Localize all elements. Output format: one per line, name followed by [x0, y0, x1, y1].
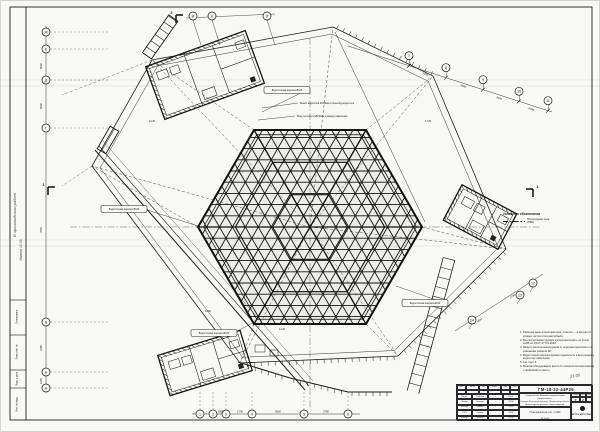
legend-title: Условные обозначения: [503, 212, 595, 216]
org-cell: МЕТРОГИПРОТРАНС: [571, 402, 593, 421]
axis-bubble-label: Г: [45, 126, 47, 130]
signature-cell: ≈: [488, 416, 503, 421]
note-line: 4. Водосточные воронки кровли подключить…: [520, 354, 595, 361]
title-block: ГМ-18-22-44Р25 Строительство Большой кол…: [456, 384, 592, 420]
dim-label: 9000: [39, 103, 43, 109]
stamp-strip-label: Подп. и дата: [16, 371, 19, 386]
pavilion-bottom: [158, 330, 253, 395]
org-name: МЕТРОГИПРОТРАНС: [572, 411, 592, 418]
pavilion-top-left: [146, 31, 265, 120]
legend-dashdot-line: [503, 221, 525, 222]
revision-table: Изм.Кол.уч.Лист№ док.Подп.Дата: [457, 385, 519, 394]
pill-label: Водосточная воронка Ø100: [272, 89, 303, 92]
drawing-number: ГМ-18-22-44Р25: [519, 385, 593, 393]
axis-bubble-label: 6: [347, 412, 349, 416]
dim-label: 5600: [275, 410, 281, 414]
scale-title-cell: План кровли на отм. +7,000 М 1:100: [519, 407, 571, 421]
dim-label: 7950: [39, 227, 43, 233]
axis-bubble-label: 12: [531, 281, 535, 285]
dim-label: 8350: [218, 410, 224, 414]
axis-bubble-label: 7: [408, 54, 410, 58]
pill-label: Водосточная воронка Ø100: [109, 208, 140, 211]
axis-bubble-label: 8: [445, 66, 447, 70]
dim-label: 6000: [39, 63, 43, 69]
leader-text: Ввод теплосети Ø150мм в камеру павильона: [297, 115, 348, 118]
note-line: 1. Размеры даны в миллиметрах, отметки —…: [520, 331, 595, 338]
signature-cell: 03.03: [503, 416, 519, 421]
signature-cell: Н.контр.: [457, 416, 472, 421]
stamp-strip-label: Взам. инв. №: [16, 344, 19, 359]
leader-texts: Вынос водостока Ø150мм в проектируемую с…: [258, 102, 355, 120]
axis-bubble-label: 5: [303, 412, 305, 416]
axis-bubble-label: 13: [518, 293, 522, 297]
note-line: 3. Защиту металлоконструкций от коррозии…: [520, 346, 595, 353]
legend-item-label: Пешеходная зона (ПВК): [527, 218, 549, 224]
leader-text: Вынос водостока Ø150мм в проектируемую с…: [300, 102, 355, 105]
dim-label: 1730: [237, 410, 243, 414]
section-mark-label: 1: [536, 184, 539, 189]
plan-title: План кровли на отм. +7,000: [520, 408, 570, 416]
elevation-label: 17.25: [425, 120, 432, 123]
notes-list: 1. Размеры даны в миллиметрах, отметки —…: [520, 331, 595, 373]
note-line: 6. Монтаж оборудования вести по технолог…: [520, 365, 595, 372]
axis-bubble-label: 11: [546, 99, 550, 103]
pill-label: Водосточная воронка Ø150: [410, 302, 441, 305]
axis-bubble-label: И: [192, 14, 195, 18]
section-mark-label: 1: [42, 182, 45, 187]
elevation-label: 21.30: [149, 120, 156, 123]
colonnade-row: [142, 15, 177, 59]
elevation-label: 14.40: [279, 328, 286, 331]
margin-handwriting: В производство работИванов 12.03: [12, 192, 23, 260]
axis-bubble-label: 14: [470, 318, 474, 322]
dim-label: 9000: [528, 106, 535, 112]
legend: Условные обозначения Пешеходная зона (ПВ…: [503, 212, 595, 224]
stamp-strip: СогласованоВзам. инв. №Подп. и датаИнв. …: [10, 300, 26, 411]
stamp-strip-label: Инв. № подл.: [16, 396, 19, 411]
section-mark-label: 2: [170, 10, 173, 15]
plan-scale: М 1:100: [520, 416, 570, 421]
signature-rows: Разраб.Смирнов≈03.03Провер.Ковалёв≈03.03…: [457, 394, 519, 421]
pill-label: Водосточная воронка Ø100: [199, 332, 230, 335]
dim-label: 5600: [476, 317, 483, 324]
axis-bubble-label: 1: [199, 412, 201, 416]
handwriting: Иванов 12.03: [19, 239, 23, 260]
axis-bubble-label: 9: [482, 78, 484, 82]
dim-label: 2780: [323, 410, 329, 414]
note-line: 2. Все металлоконструкции купола выполни…: [520, 339, 595, 346]
stairs-ladder: [407, 257, 455, 393]
axis-bubble-label: 4: [251, 412, 253, 416]
dim-label: 1240: [39, 378, 43, 384]
signature-cell: Ильина: [472, 416, 488, 421]
handwriting: В производство работ: [12, 192, 17, 237]
stamp-strip-label: Согласовано: [16, 309, 19, 324]
elevation-label: 19.80: [205, 310, 212, 313]
axis-bubble-label: 3: [225, 412, 227, 416]
dim-label: 2180: [39, 345, 43, 351]
axis-bubble-label: 2: [212, 412, 214, 416]
axis-bubble-label: 10: [517, 90, 521, 94]
project-description: Строительство Большой кольцевой линии ме…: [519, 393, 571, 407]
drawing-sheet: СогласованоВзам. инв. №Подп. и датаИнв. …: [0, 0, 600, 432]
